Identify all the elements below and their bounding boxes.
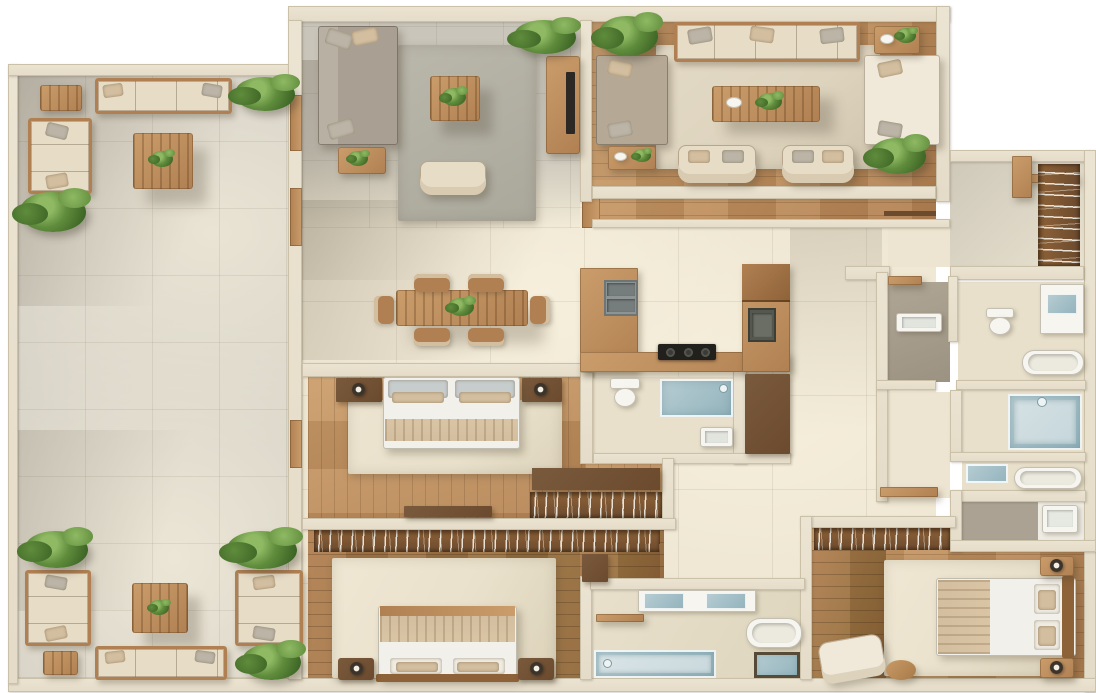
bedroom1-closet-shelf [532,468,660,490]
bathroom2-bathtub [1022,350,1084,375]
balcony-plant-2 [20,192,86,232]
corridor-floor [888,227,950,267]
bedroom3-bed [936,578,1076,656]
lounge-armchair-1 [678,145,756,183]
wall-bottom [8,678,1096,692]
tv [566,72,575,134]
lounge-coffee-table [712,86,820,122]
wall-shower-left [950,390,962,460]
hallway-console [880,487,938,497]
cooktop [658,344,716,360]
closet-wardrobe [1038,164,1080,266]
balcony-door-3 [290,420,302,468]
wall-column-top [950,266,1084,280]
wall-wc-divider [948,276,958,342]
wall-bedroom3-top [800,516,956,528]
guest-toilet-bowl [614,388,636,407]
bathroom3-washbasin [966,464,1008,483]
balcony-coffee-table-bottom [132,583,188,633]
bedroom2-lamp-left [350,662,363,675]
bedroom3-wardrobe [814,528,950,550]
bedroom3-ottoman [886,660,916,680]
bedroom1-wardrobe [530,492,662,518]
wall-hall-bottom [592,219,950,228]
balcony-plant-1 [235,77,295,111]
lounge-plant-1 [598,16,658,56]
wall-balcony-top [8,64,290,76]
wall-bathroom2-bottom-b [956,380,1086,390]
wc-washbasin [896,313,942,332]
dining-chair [468,328,504,346]
wall-bedroom1-top [302,363,594,377]
balcony-plant-4 [227,531,297,569]
bathroom3-bathtub [1014,467,1082,489]
wall-masterbath-top [590,578,805,590]
bedroom2-wardrobe [314,530,660,552]
wall-masterbath-left [580,576,592,680]
column-corridor-floor [888,392,950,498]
bedroom2-headboard [376,674,519,682]
guest-bath-cabinet [745,374,790,454]
wc-shelf [888,276,922,285]
wc-floor [888,282,950,382]
dining-chair [530,296,550,324]
dining-chair [468,274,504,292]
living-sectional-sofa [318,26,398,145]
closet-panel [1012,156,1032,198]
dining-chair [414,328,450,346]
wall-bedrooms-divider [302,518,676,530]
living-plant [514,20,576,54]
wall-bedroom3-left [800,516,812,680]
master-shower [594,650,716,678]
lounge-plant-2 [870,138,926,174]
wall-guestbath-bottom [593,453,791,464]
kitchen-tall-cabinet [742,264,790,302]
wall-lounge-bottom [592,186,936,199]
bedroom3-blanket [938,580,990,654]
balcony-coffee-table-top [133,133,193,189]
guest-washbasin [700,427,733,447]
dining-chair [414,274,450,292]
wall-right-outer [1084,150,1096,692]
balcony-side-table-bottom [43,651,78,675]
wall-bathroom2-bottom-a [876,380,936,390]
bedroom2-blanket [380,616,515,642]
lounge-door-track [884,211,936,216]
wall-shower-bottom [950,452,1086,462]
kitchen-counter-right [742,264,790,372]
kitchen-prep-sink [748,308,776,342]
lounge-armchair-2 [782,145,854,183]
living-coffee-table [430,76,480,121]
lounge-sofa-top [674,22,860,62]
master-bathtub [746,618,802,648]
balcony-sofa-right [235,570,303,646]
balcony-plant-3 [25,531,88,568]
lounge-sofa-right [864,55,940,145]
bedroom2-lamp-right [530,662,543,675]
lounge-side-table-1 [874,26,920,54]
wall-living-lounge [580,20,592,202]
balcony-plant-5 [242,644,301,680]
master-vanity [638,590,756,612]
dining-chair [374,296,394,324]
tv-console [546,56,580,154]
balcony-sofa-bottom [95,646,227,680]
wall-bathroom3-bottom [950,490,1086,502]
living-armchair [420,161,486,195]
floor-plan [0,0,1096,693]
bedroom1-wall-lamp-left [352,383,365,396]
living-side-table [338,147,386,174]
balcony-sofa-left [25,570,91,646]
balcony-side-table-top [40,85,82,111]
bedroom3-headboard [1062,576,1074,658]
master-basin [754,652,800,678]
master-bath-shelf [596,614,644,622]
wall-guestbath-left [580,372,593,464]
wall-balcony-left [8,64,18,684]
ensuite-washbasin [1042,505,1078,533]
wall-ensuite-bottom [950,540,1096,552]
lounge-side-table-2 [608,146,656,170]
bedroom1-blanket [385,419,518,441]
dining-table [396,290,528,326]
bedroom1-wall-lamp-right [534,383,547,396]
bedroom2-dresser [582,554,608,582]
balcony-door-1 [290,95,302,151]
bedroom1-bed [383,377,520,449]
balcony-door-2 [290,188,302,246]
guest-shower [660,379,733,417]
bedroom2-bed [378,606,517,680]
ensuite-floor-gray [962,502,1038,540]
lounge-sofa-left [596,55,668,145]
bedroom3-lamp-top [1050,559,1063,572]
bedroom1-dresser [404,506,492,517]
bathroom2-vanity [1040,284,1084,334]
balcony-corner-sofa [28,118,92,194]
bedroom3-lamp-bottom [1050,661,1063,674]
kitchen-double-sink [604,280,638,316]
balcony-sofa-top [95,78,232,114]
bathroom2-toilet-bowl [989,317,1011,335]
shower-room-shower [1008,394,1082,450]
